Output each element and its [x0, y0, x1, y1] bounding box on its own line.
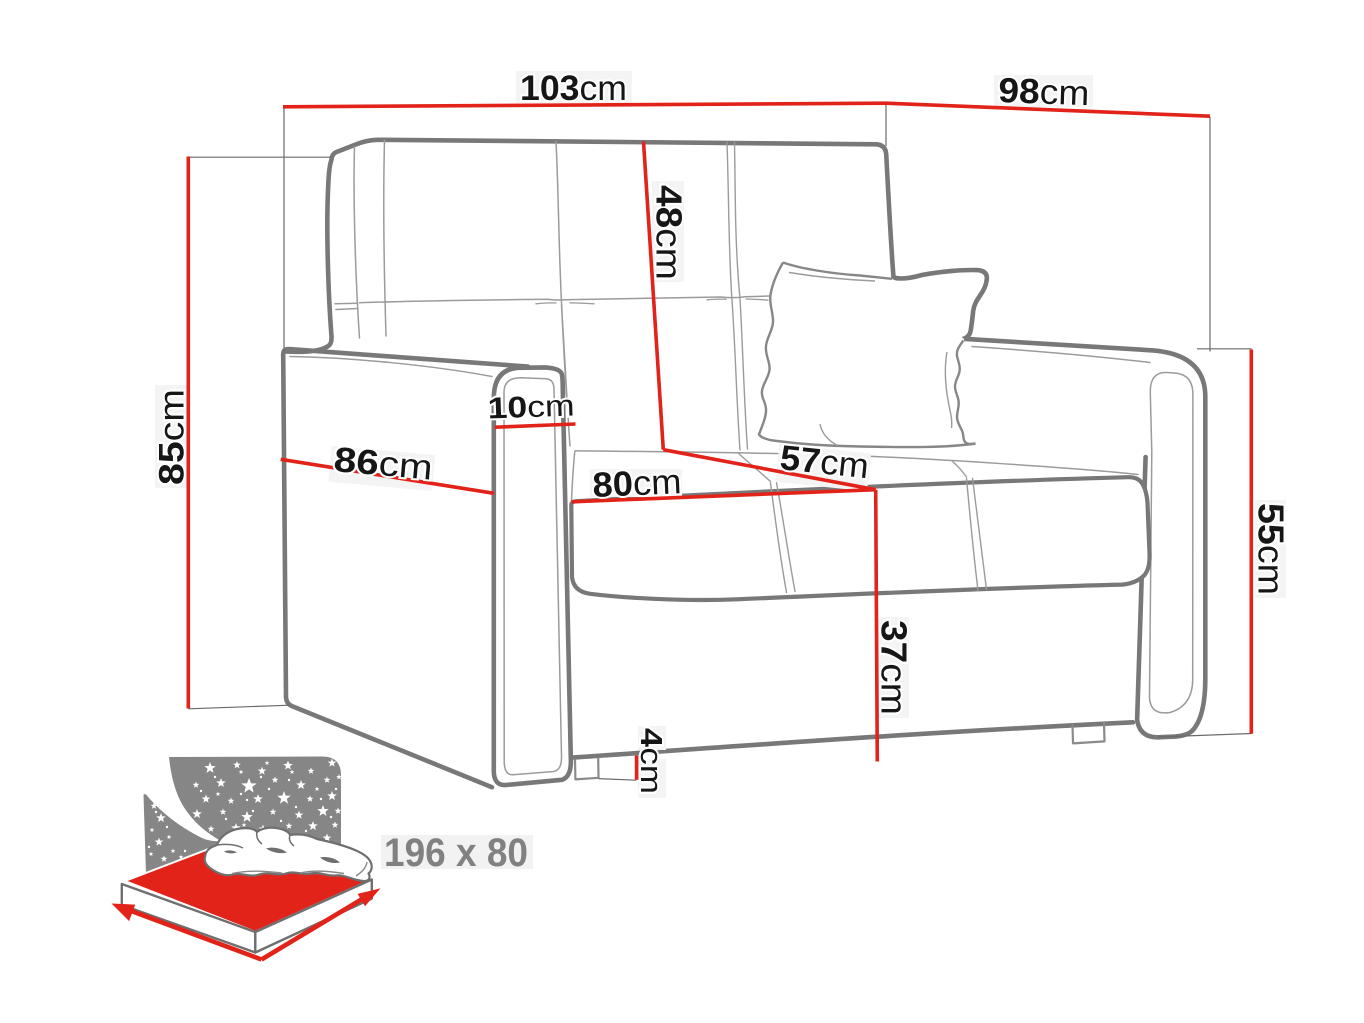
svg-text:196 x 80: 196 x 80	[384, 831, 528, 875]
svg-text:4cm: 4cm	[634, 728, 669, 794]
svg-text:85cm: 85cm	[153, 389, 192, 485]
svg-text:48cm: 48cm	[649, 185, 690, 280]
svg-text:98cm: 98cm	[998, 71, 1090, 113]
svg-text:10cm: 10cm	[487, 389, 575, 425]
svg-text:55cm: 55cm	[1251, 503, 1292, 595]
svg-text:103cm: 103cm	[520, 69, 627, 108]
svg-text:80cm: 80cm	[592, 462, 683, 505]
svg-text:37cm: 37cm	[874, 620, 915, 715]
